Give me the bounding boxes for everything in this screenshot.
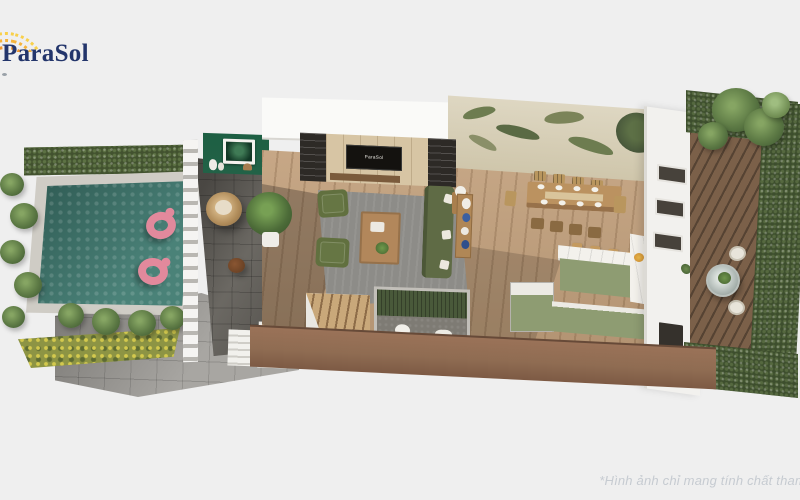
hanging-chair bbox=[206, 192, 242, 226]
armchair bbox=[317, 189, 349, 218]
window bbox=[655, 198, 685, 219]
plate bbox=[559, 200, 566, 205]
plate bbox=[541, 199, 548, 204]
armchair bbox=[315, 237, 349, 268]
pillow bbox=[441, 230, 451, 240]
dining-table bbox=[526, 182, 621, 213]
vase bbox=[209, 159, 217, 170]
console-table bbox=[455, 194, 473, 259]
palm-tree bbox=[10, 203, 38, 229]
vase bbox=[461, 240, 469, 249]
potted-plant bbox=[246, 192, 292, 236]
swimming-pool bbox=[38, 181, 193, 307]
plant-pot bbox=[262, 232, 279, 247]
palm-tree bbox=[2, 306, 25, 328]
palm-tree bbox=[128, 310, 156, 336]
plate bbox=[591, 187, 598, 192]
vase bbox=[461, 227, 469, 235]
plate bbox=[595, 202, 602, 207]
plate bbox=[537, 184, 544, 189]
palm-tree bbox=[58, 303, 84, 328]
palm-tree bbox=[698, 122, 728, 150]
window bbox=[653, 231, 683, 252]
mural-leaf bbox=[461, 104, 496, 122]
tv-screen: ParaSol bbox=[346, 145, 402, 171]
flower-bouquet bbox=[634, 253, 644, 262]
dining-chair bbox=[531, 218, 545, 230]
bathroom-wall bbox=[377, 289, 467, 318]
parasol-logo-text: ParaSol bbox=[2, 40, 89, 68]
tropical-mural-wall bbox=[448, 95, 664, 182]
plate bbox=[573, 186, 580, 191]
palm-tree bbox=[92, 308, 120, 335]
dining-chair bbox=[614, 196, 627, 214]
disclaimer-watermark: *Hình ảnh chỉ mang tính chất tham bbox=[599, 473, 800, 488]
mural-leaf bbox=[467, 131, 498, 153]
tv-screen-text: ParaSol bbox=[365, 155, 384, 161]
logo-tagline-fragment bbox=[2, 73, 7, 76]
green-accent-wall bbox=[203, 133, 269, 175]
table-plant bbox=[718, 272, 731, 284]
vase bbox=[462, 198, 471, 209]
vase bbox=[218, 162, 224, 170]
mural-leaf bbox=[543, 110, 584, 125]
sofa bbox=[421, 186, 454, 279]
rattan-decor bbox=[243, 163, 252, 170]
palm-tree bbox=[0, 240, 25, 264]
kitchen-cabinet bbox=[510, 282, 554, 332]
coffee-table bbox=[359, 211, 401, 264]
mural-leaf bbox=[567, 133, 615, 159]
louver-wall bbox=[183, 140, 198, 363]
palm-tree bbox=[762, 92, 790, 118]
bookshelf bbox=[300, 133, 326, 182]
mural-leaf bbox=[495, 121, 540, 142]
floorplan-render: ParaSol bbox=[0, 0, 800, 500]
window bbox=[657, 164, 687, 185]
tv-wall: ParaSol bbox=[300, 133, 456, 188]
bookshelf bbox=[428, 138, 456, 187]
tray bbox=[370, 222, 384, 232]
palm-tree bbox=[160, 306, 185, 330]
plate bbox=[577, 201, 584, 206]
plate bbox=[555, 185, 562, 190]
table-plant bbox=[375, 242, 388, 254]
pillow bbox=[439, 259, 450, 270]
dining-chair bbox=[504, 190, 517, 206]
patio-side-table bbox=[228, 258, 245, 273]
palm-tree bbox=[0, 173, 24, 196]
dining-chair bbox=[588, 227, 602, 239]
palm-tree bbox=[14, 272, 42, 298]
dining-chair bbox=[534, 171, 547, 182]
table-runner bbox=[545, 191, 603, 201]
vase bbox=[462, 213, 470, 222]
wall-art-print bbox=[226, 142, 252, 162]
garden-hedge bbox=[24, 144, 198, 175]
dining-chair bbox=[569, 224, 583, 236]
wall-art bbox=[223, 139, 255, 165]
dining-chair bbox=[550, 221, 564, 233]
bistro-table bbox=[706, 264, 740, 297]
